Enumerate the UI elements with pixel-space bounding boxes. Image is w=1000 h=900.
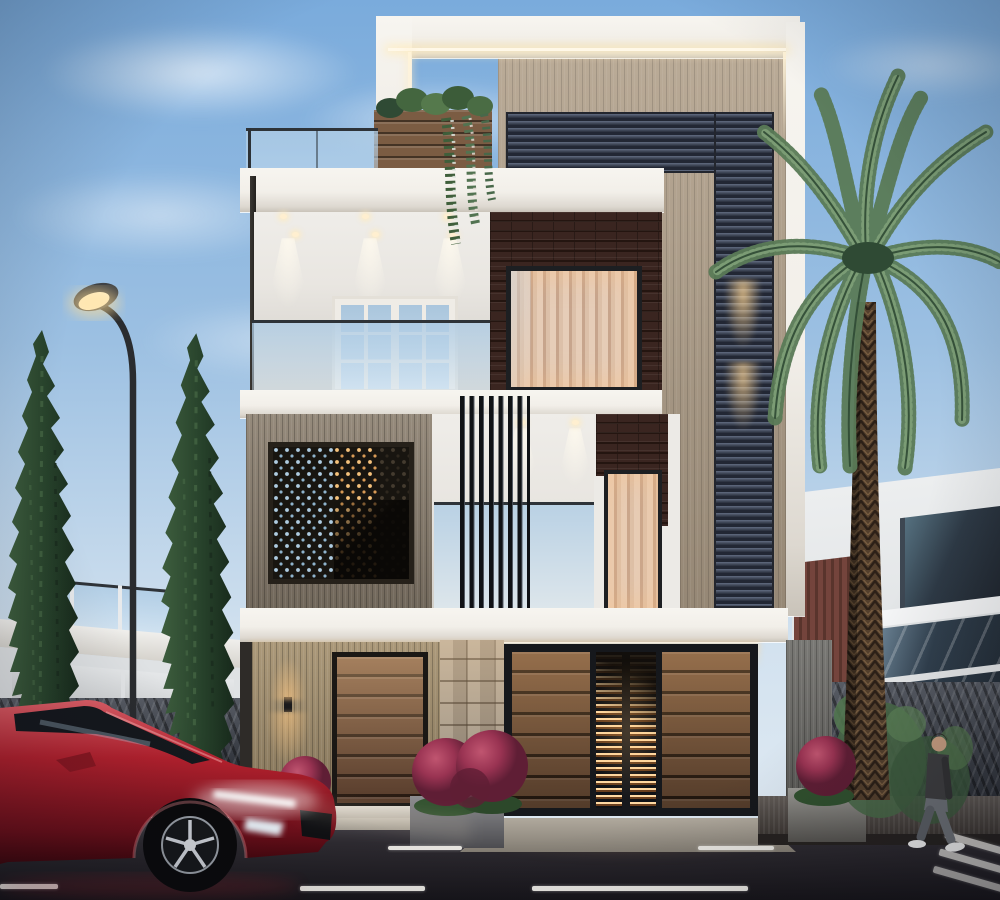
flower-bushes [278, 730, 856, 816]
man-head [932, 737, 947, 752]
palm-tree [716, 76, 1000, 800]
flower-bush [412, 730, 528, 816]
palm-crown [842, 242, 894, 274]
hanging-vine [446, 114, 492, 244]
man-shoe [908, 840, 926, 848]
red-sports-car [0, 700, 470, 898]
car-reflection [0, 874, 300, 898]
flower-bush [794, 736, 856, 806]
render-canvas [0, 0, 1000, 900]
planter-plants [376, 86, 493, 244]
foreground-elements [0, 0, 1000, 900]
